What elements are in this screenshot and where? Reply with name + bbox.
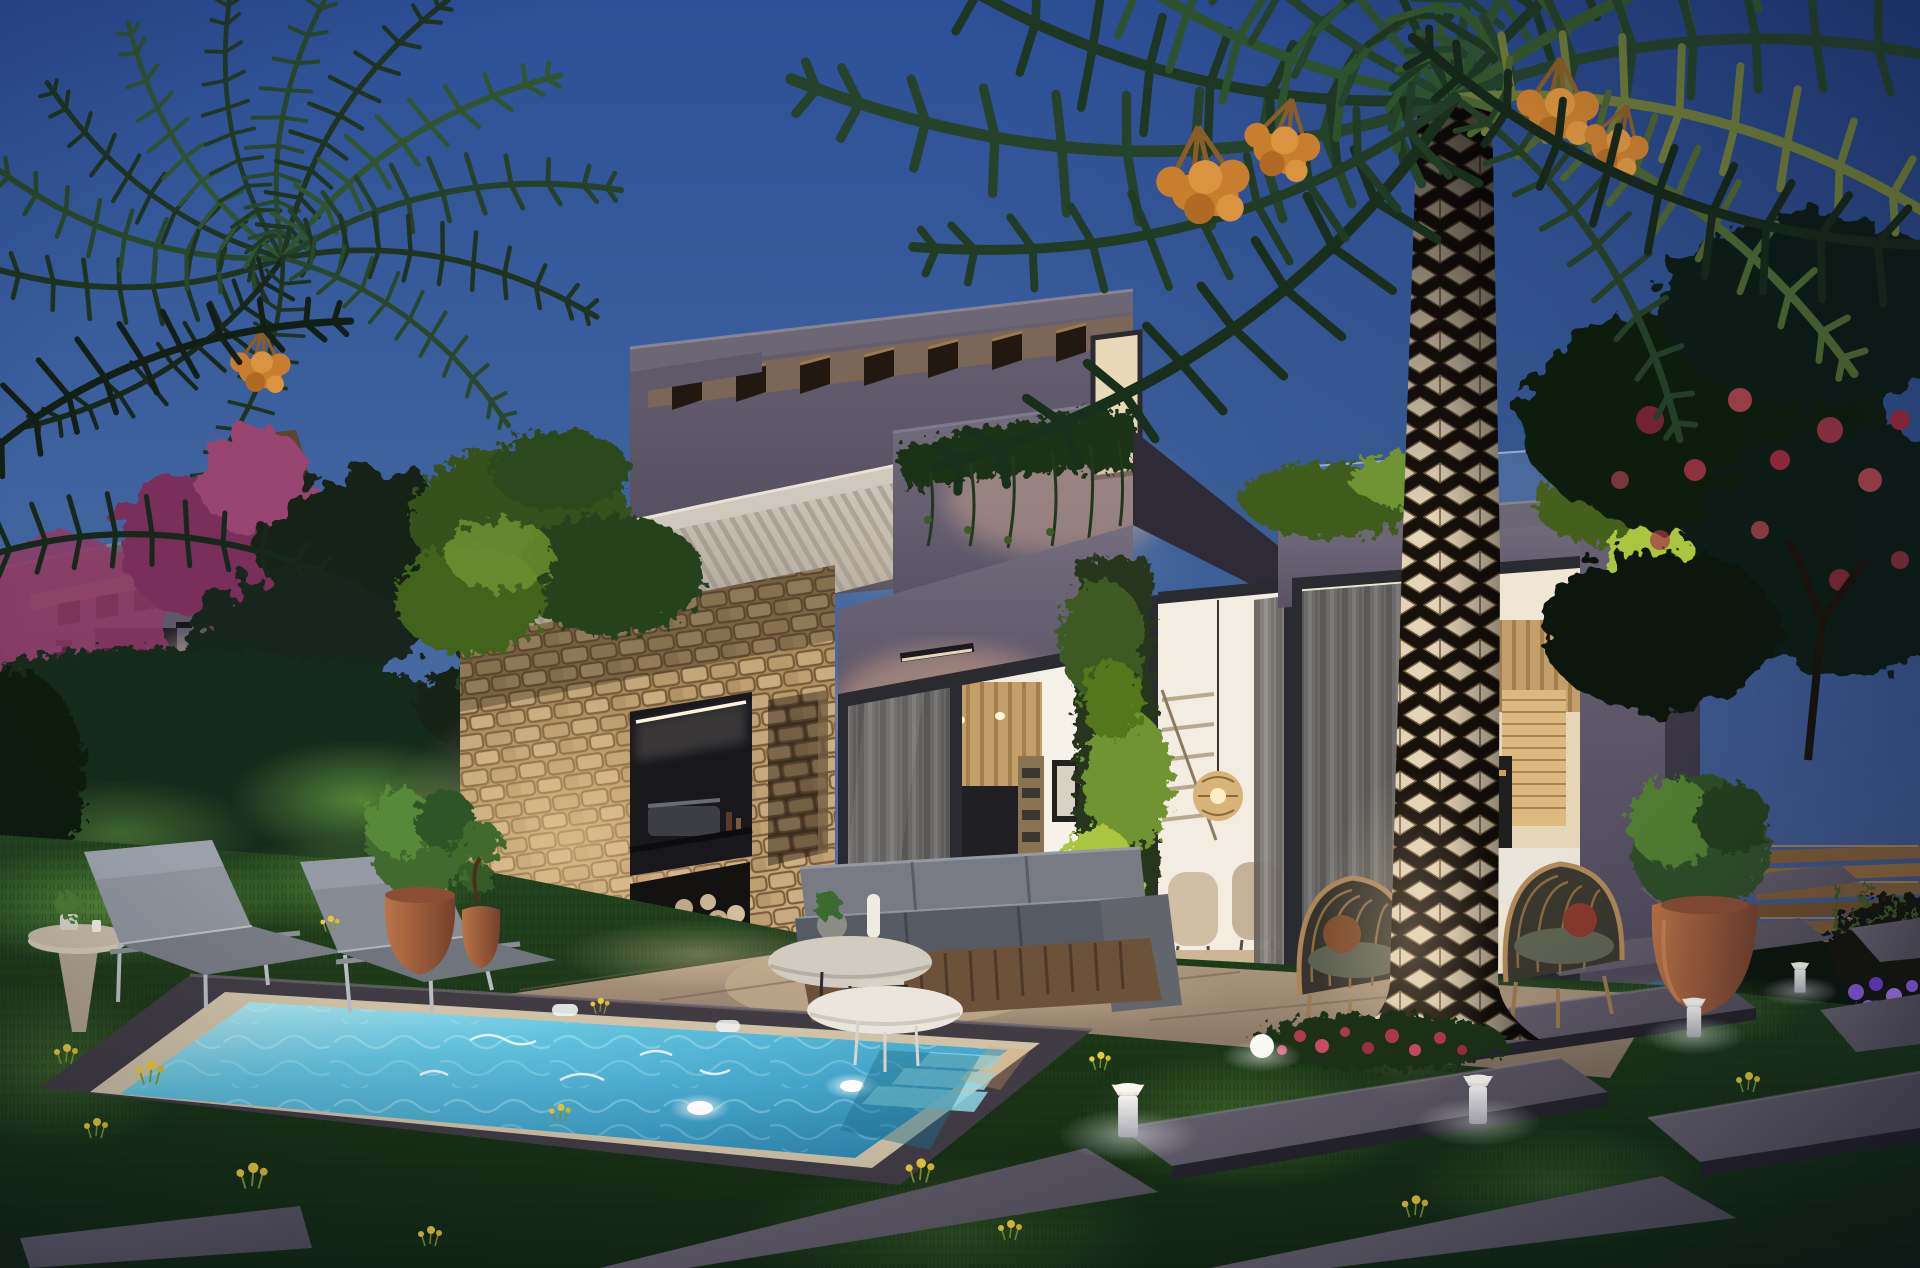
villa-dusk-render xyxy=(0,0,1920,1268)
vignette xyxy=(0,0,1920,1268)
scene-canvas xyxy=(0,0,1920,1268)
